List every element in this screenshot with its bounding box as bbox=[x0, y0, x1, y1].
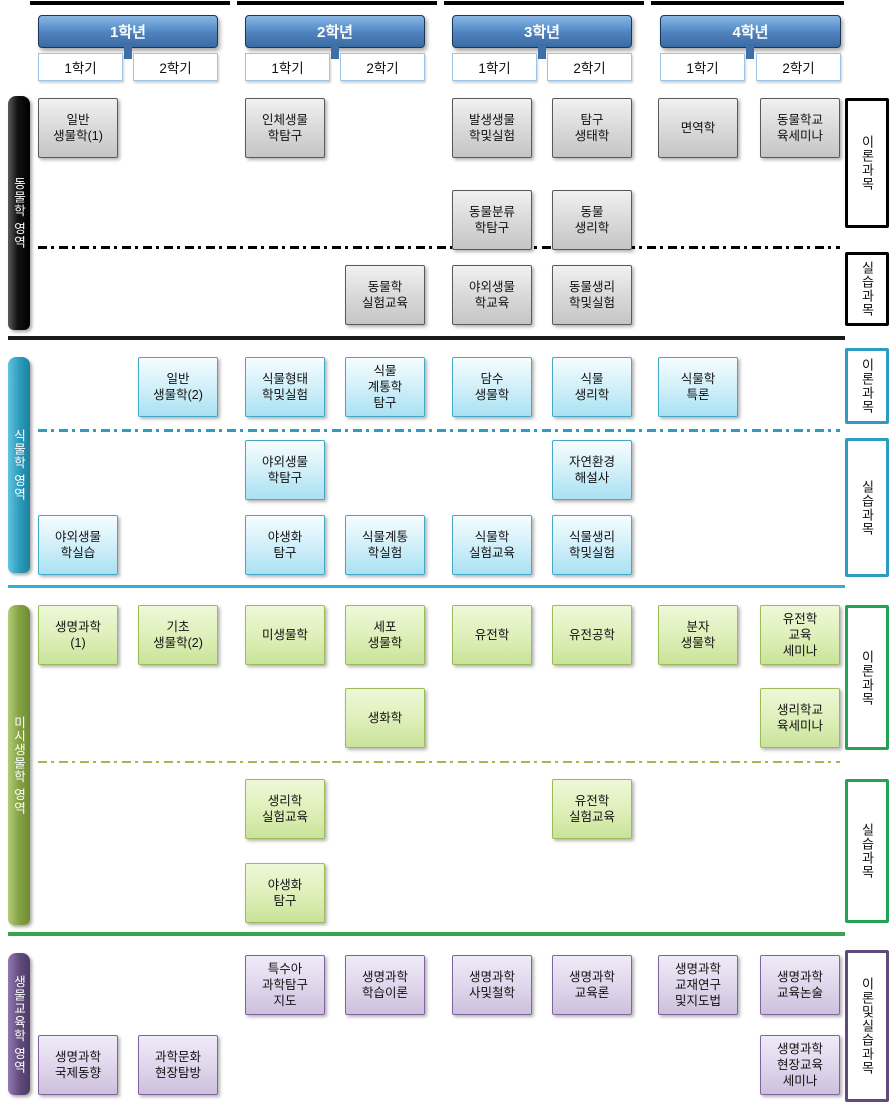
course-box: 분자 생물학 bbox=[658, 605, 738, 665]
year-header-1: 1학년 bbox=[38, 15, 218, 48]
semester-label: 1학기 bbox=[452, 53, 537, 81]
top-border-segment bbox=[444, 1, 644, 5]
course-box: 생명과학 교육논술 bbox=[760, 955, 840, 1015]
course-box: 유전학 bbox=[452, 605, 532, 665]
course-box: 생명과학 현장교육 세미나 bbox=[760, 1035, 840, 1095]
course-box: 유전공학 bbox=[552, 605, 632, 665]
header-notch bbox=[538, 46, 546, 59]
course-box: 생명과학 (1) bbox=[38, 605, 118, 665]
year-header-2: 2학년 bbox=[245, 15, 425, 48]
dashdot-line-plant bbox=[38, 429, 840, 432]
course-box: 생리학 실험교육 bbox=[245, 779, 325, 839]
course-box: 동물분류 학탐구 bbox=[452, 190, 532, 250]
header-notch bbox=[331, 46, 339, 59]
year-header-3: 3학년 bbox=[452, 15, 632, 48]
section-divider-animal bbox=[8, 336, 845, 340]
course-box: 식물생리 학및실험 bbox=[552, 515, 632, 575]
section-bar-bioedu: 생물교육학 영역 bbox=[8, 953, 30, 1095]
side-label-theory-micro: 이론과목 bbox=[845, 605, 889, 750]
course-box: 식물계통 학실험 bbox=[345, 515, 425, 575]
course-box: 미생물학 bbox=[245, 605, 325, 665]
dashdot-line-animal bbox=[38, 246, 840, 249]
course-box: 생명과학 교재연구 및지도법 bbox=[658, 955, 738, 1015]
course-box: 야외생물 학교육 bbox=[452, 265, 532, 325]
year-header-4: 4학년 bbox=[660, 15, 841, 48]
course-box: 과학문화 현장탐방 bbox=[138, 1035, 218, 1095]
section-bar-micro: 미시생물학 영역 bbox=[8, 605, 30, 925]
course-box: 발생생물 학및실험 bbox=[452, 98, 532, 158]
course-box: 생명과학 학습이론 bbox=[345, 955, 425, 1015]
course-box: 식물학 특론 bbox=[658, 357, 738, 417]
section-divider-plant bbox=[8, 585, 845, 588]
semester-label: 2학기 bbox=[340, 53, 425, 81]
course-box: 생명과학 국제동향 bbox=[38, 1035, 118, 1095]
course-box: 식물학 실험교육 bbox=[452, 515, 532, 575]
course-box: 특수아 과학탐구 지도 bbox=[245, 955, 325, 1015]
dashdot-line-micro bbox=[38, 761, 840, 763]
course-box: 인체생물 학탐구 bbox=[245, 98, 325, 158]
course-box: 식물형태 학및실험 bbox=[245, 357, 325, 417]
course-box: 담수 생물학 bbox=[452, 357, 532, 417]
semester-label: 2학기 bbox=[547, 53, 632, 81]
header-notch bbox=[746, 46, 754, 59]
top-border-segment bbox=[30, 1, 230, 5]
top-border-segment bbox=[651, 1, 844, 5]
course-box: 일반 생물학(2) bbox=[138, 357, 218, 417]
side-label-theory-animal: 이론과목 bbox=[845, 98, 889, 228]
course-box: 유전학 실험교육 bbox=[552, 779, 632, 839]
course-box: 자연환경 해설사 bbox=[552, 440, 632, 500]
semester-label: 1학기 bbox=[245, 53, 330, 81]
side-label-theory-plant: 이론과목 bbox=[845, 348, 889, 424]
side-label-practice-animal: 실습과목 bbox=[845, 252, 889, 326]
course-box: 식물 생리학 bbox=[552, 357, 632, 417]
course-box: 동물생리 학및실험 bbox=[552, 265, 632, 325]
course-box: 야외생물 학실습 bbox=[38, 515, 118, 575]
curriculum-diagram: 1학년 1학기 2학기 2학년 1학기 2학기 3학년 1학기 2학기 4학년 … bbox=[0, 0, 893, 1109]
course-box: 생화학 bbox=[345, 688, 425, 748]
course-box: 기초 생물학(2) bbox=[138, 605, 218, 665]
course-box: 유전학 교육 세미나 bbox=[760, 605, 840, 665]
top-border-segment bbox=[237, 1, 437, 5]
course-box: 야외생물 학탐구 bbox=[245, 440, 325, 500]
course-box: 일반 생물학(1) bbox=[38, 98, 118, 158]
side-label-theory-practice-bioedu: 이론및실습과목 bbox=[845, 950, 889, 1102]
course-box: 식물 계통학 탐구 bbox=[345, 357, 425, 417]
semester-label: 2학기 bbox=[133, 53, 218, 81]
course-box: 세포 생물학 bbox=[345, 605, 425, 665]
course-box: 생명과학 사및철학 bbox=[452, 955, 532, 1015]
course-box: 탐구 생태학 bbox=[552, 98, 632, 158]
course-box: 동물학교 육세미나 bbox=[760, 98, 840, 158]
semester-label: 1학기 bbox=[660, 53, 745, 81]
course-box: 생명과학 교육론 bbox=[552, 955, 632, 1015]
course-box: 야생화 탐구 bbox=[245, 515, 325, 575]
course-box: 동물 생리학 bbox=[552, 190, 632, 250]
header-notch bbox=[124, 46, 132, 59]
course-box: 생리학교 육세미나 bbox=[760, 688, 840, 748]
course-box: 면역학 bbox=[658, 98, 738, 158]
section-bar-animal: 동물학 영역 bbox=[8, 96, 30, 330]
section-divider-micro bbox=[8, 932, 845, 936]
semester-label: 2학기 bbox=[756, 53, 841, 81]
side-label-practice-micro: 실습과목 bbox=[845, 779, 889, 923]
semester-label: 1학기 bbox=[38, 53, 123, 81]
section-bar-plant: 식물학 영역 bbox=[8, 357, 30, 573]
course-box: 야생화 탐구 bbox=[245, 863, 325, 923]
side-label-practice-plant: 실습과목 bbox=[845, 438, 889, 577]
course-box: 동물학 실험교육 bbox=[345, 265, 425, 325]
